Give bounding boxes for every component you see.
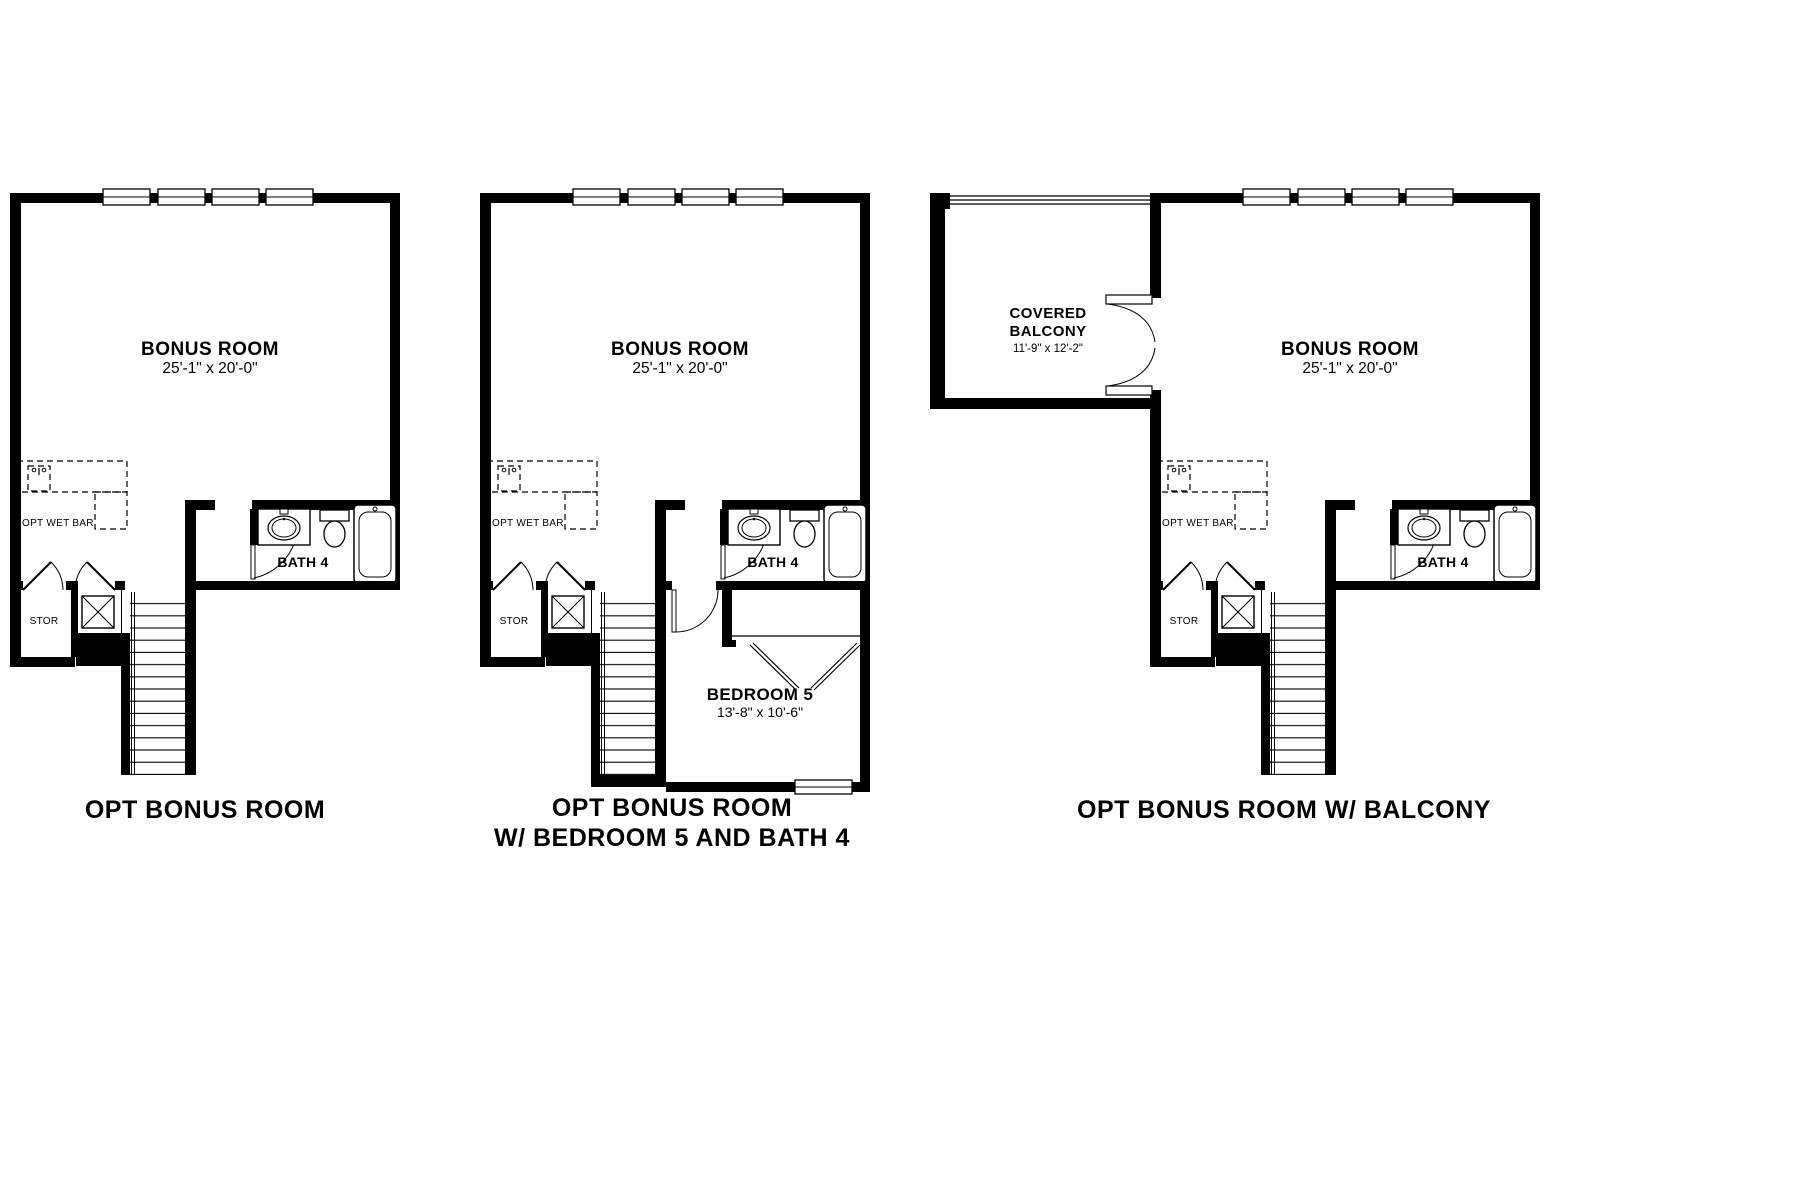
french-doors-icon: [1106, 295, 1155, 395]
balcony-label-line2: BALCONY: [1010, 323, 1087, 340]
balcony-railing: [948, 196, 1151, 204]
floor-plan-sheet: BONUS ROOM 25'-1" x 20'-0" OPT WET BAR S…: [0, 0, 1800, 1200]
floor-plan-opt-bonus-room: OPT BONUS ROOM: [10, 189, 400, 824]
balcony-label-line1: COVERED: [1010, 305, 1087, 322]
floor-plan-opt-bonus-room-balcony: COVERED BALCONY 11'-9" x 12'-2" OPT BONU…: [930, 189, 1540, 824]
bedroom-door: [672, 590, 718, 632]
closet-doors-icon: [750, 643, 860, 690]
bedroom-closet: [722, 590, 860, 690]
covered-balcony: COVERED BALCONY 11'-9" x 12'-2": [930, 193, 1161, 409]
floor-plan-opt-bonus-room-bedroom5-bath4: BEDROOM 5 13'-8" x 10'-6" OPT BONUS ROOM…: [480, 189, 870, 852]
bedroom-5-dimensions: 13'-8" x 10'-6": [717, 704, 803, 720]
floor-plans-drawing: BONUS ROOM 25'-1" x 20'-0" OPT WET BAR S…: [0, 0, 1800, 1200]
plan-2-title-line1: OPT BONUS ROOM: [552, 794, 792, 822]
plan-3-title: OPT BONUS ROOM W/ BALCONY: [1077, 796, 1491, 824]
bedroom-5-label: BEDROOM 5: [707, 685, 814, 704]
balcony-dimensions: 11'-9" x 12'-2": [1013, 343, 1083, 355]
plan-2-title-line2: W/ BEDROOM 5 AND BATH 4: [494, 824, 850, 852]
bedroom-window-icon: [795, 780, 852, 794]
plan-1-title: OPT BONUS ROOM: [85, 796, 325, 824]
